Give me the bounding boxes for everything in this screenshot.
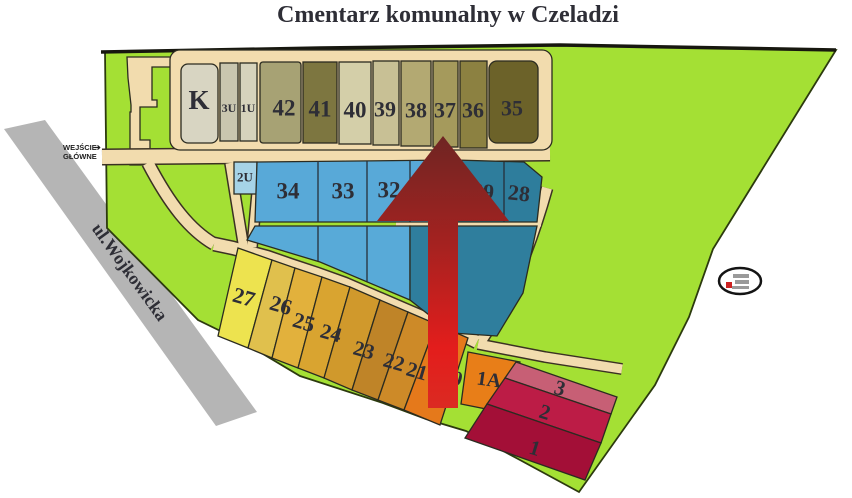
teal-cross-alley bbox=[396, 223, 541, 225]
cemetery-map: Cmentarz komunalny w Czeladzi ul.Wojkowi… bbox=[0, 0, 852, 498]
logo-text-row1 bbox=[733, 274, 749, 278]
cemetery-map-page: Cmentarz komunalny w Czeladzi ul.Wojkowi… bbox=[0, 0, 852, 498]
logo-text-row2 bbox=[735, 280, 749, 284]
plot-39-label: 39 bbox=[374, 97, 396, 122]
plot-41-label: 41 bbox=[309, 97, 332, 122]
plot-36-label: 36 bbox=[462, 98, 484, 123]
main-alley bbox=[102, 153, 550, 157]
plot-K-label: K bbox=[188, 85, 209, 115]
logo-text-row3 bbox=[732, 286, 749, 289]
plot-42-label: 42 bbox=[273, 96, 296, 121]
entrance-arrow-icon: ➔ bbox=[94, 143, 101, 152]
north-plots: K 3U 1U 42 41 40 39 38 37 36 35 bbox=[181, 61, 538, 148]
logo-red-mark bbox=[726, 282, 732, 288]
entrance-line1: WEJŚCIE bbox=[63, 143, 97, 152]
entrance-line2: GŁÓWNE bbox=[63, 152, 97, 161]
plot-34-label: 34 bbox=[277, 179, 301, 204]
company-logo bbox=[719, 268, 761, 294]
main-entrance-label: WEJŚCIE ➔ GŁÓWNE bbox=[63, 143, 101, 161]
plot-35-label: 35 bbox=[501, 96, 523, 121]
plot-3U-label: 3U bbox=[222, 101, 237, 115]
plot-37-label: 37 bbox=[434, 98, 456, 123]
plot-38-label: 38 bbox=[405, 98, 427, 123]
plot-33-label: 33 bbox=[332, 179, 355, 204]
page-title: Cmentarz komunalny w Czeladzi bbox=[277, 2, 619, 28]
plot-28-label: 28 bbox=[507, 179, 531, 206]
plot-1U-label: 1U bbox=[241, 101, 256, 115]
plot-2U-label: 2U bbox=[237, 170, 254, 185]
plot-40-label: 40 bbox=[344, 98, 367, 123]
